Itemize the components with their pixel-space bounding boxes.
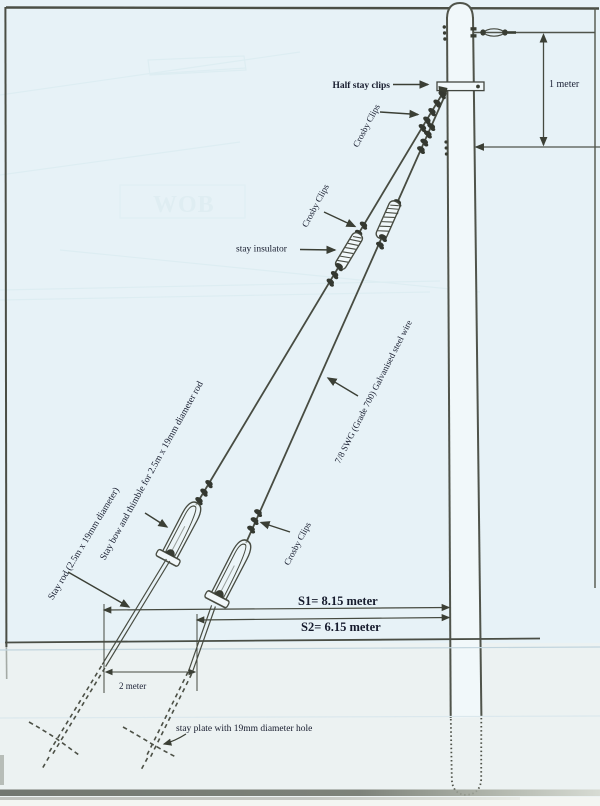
svg-text:stay plate with 19mm diameter: stay plate with 19mm diameter hole bbox=[176, 724, 312, 734]
svg-text:2 meter: 2 meter bbox=[119, 681, 146, 691]
svg-text:stay insulator: stay insulator bbox=[236, 245, 288, 255]
svg-text:1 meter: 1 meter bbox=[549, 79, 580, 90]
svg-text:WOB: WOB bbox=[153, 192, 215, 218]
svg-text:S1= 8.15 meter: S1= 8.15 meter bbox=[298, 594, 378, 608]
svg-text:S2= 6.15 meter: S2= 6.15 meter bbox=[301, 620, 381, 634]
svg-text:Half stay clips: Half stay clips bbox=[332, 81, 390, 91]
